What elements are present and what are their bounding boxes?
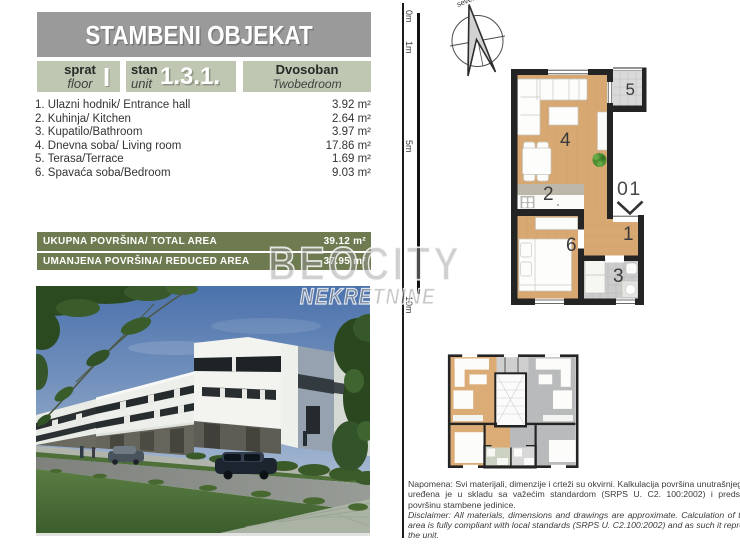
svg-text:2: 2 — [543, 184, 554, 205]
svg-text:1: 1 — [623, 224, 634, 245]
svg-text:sever: sever — [455, 0, 476, 9]
svg-text:01: 01 — [617, 178, 642, 200]
svg-text:5: 5 — [626, 80, 635, 99]
svg-text:3: 3 — [613, 266, 624, 287]
svg-text:6: 6 — [566, 235, 577, 256]
svg-text:4: 4 — [560, 130, 571, 151]
